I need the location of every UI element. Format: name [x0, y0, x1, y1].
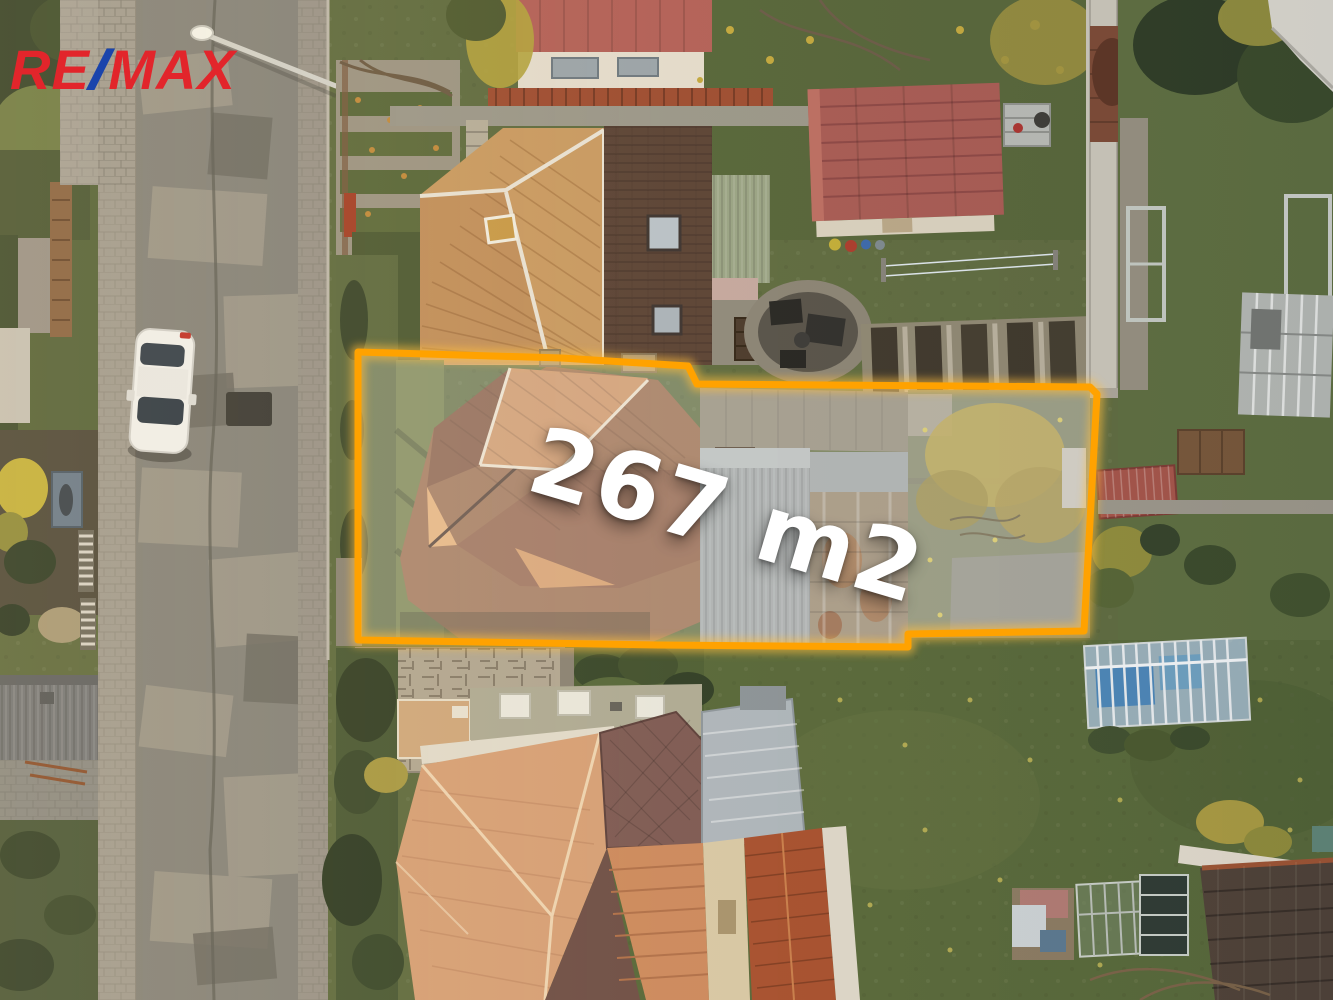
remax-logo: RE/MAX	[10, 42, 236, 98]
plot-fill	[358, 352, 1097, 647]
plot-boundary-overlay	[358, 352, 1097, 647]
photo-scene	[0, 0, 1333, 1000]
remax-logo-max: MAX	[108, 38, 235, 101]
aerial-property-photo: 267 m2 RE/MAX	[0, 0, 1333, 1000]
remax-logo-slash: /	[88, 42, 110, 98]
remax-logo-re: RE	[10, 38, 90, 101]
